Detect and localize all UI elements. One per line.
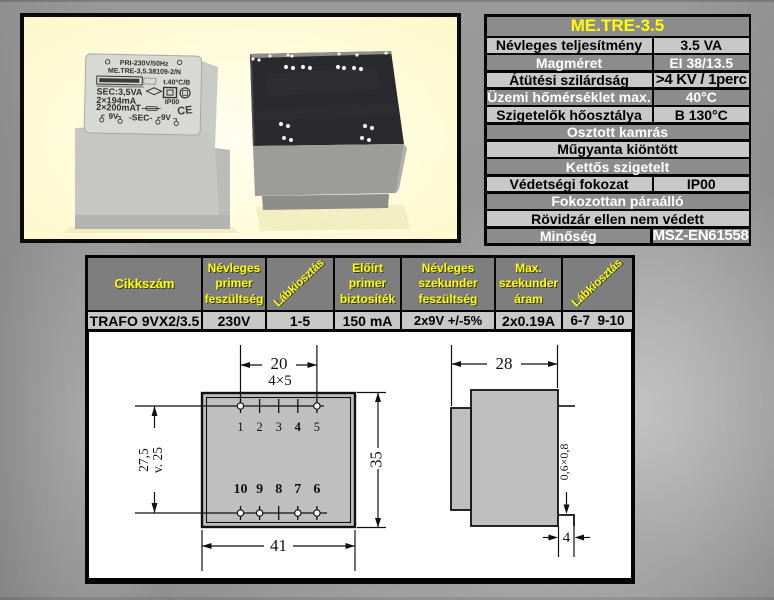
svg-text:28: 28 bbox=[496, 354, 513, 373]
svg-text:7: 7 bbox=[294, 482, 301, 497]
svg-text:10: 10 bbox=[234, 482, 248, 497]
svg-text:v. 25: v. 25 bbox=[150, 447, 165, 473]
svg-text:4: 4 bbox=[295, 420, 302, 434]
svg-text:35: 35 bbox=[367, 451, 386, 468]
svg-text:27,5: 27,5 bbox=[136, 448, 151, 472]
svg-text:0,6×0,8: 0,6×0,8 bbox=[557, 444, 571, 481]
svg-text:9: 9 bbox=[256, 482, 263, 497]
svg-text:20: 20 bbox=[271, 354, 288, 373]
svg-text:6: 6 bbox=[313, 482, 320, 497]
svg-text:3: 3 bbox=[276, 420, 282, 434]
svg-text:2: 2 bbox=[256, 420, 262, 434]
svg-text:5: 5 bbox=[314, 420, 320, 434]
svg-text:8: 8 bbox=[275, 482, 282, 497]
svg-text:41: 41 bbox=[270, 536, 287, 555]
svg-text:4×5: 4×5 bbox=[268, 373, 291, 389]
svg-text:4: 4 bbox=[563, 530, 571, 546]
svg-text:1: 1 bbox=[237, 420, 243, 434]
